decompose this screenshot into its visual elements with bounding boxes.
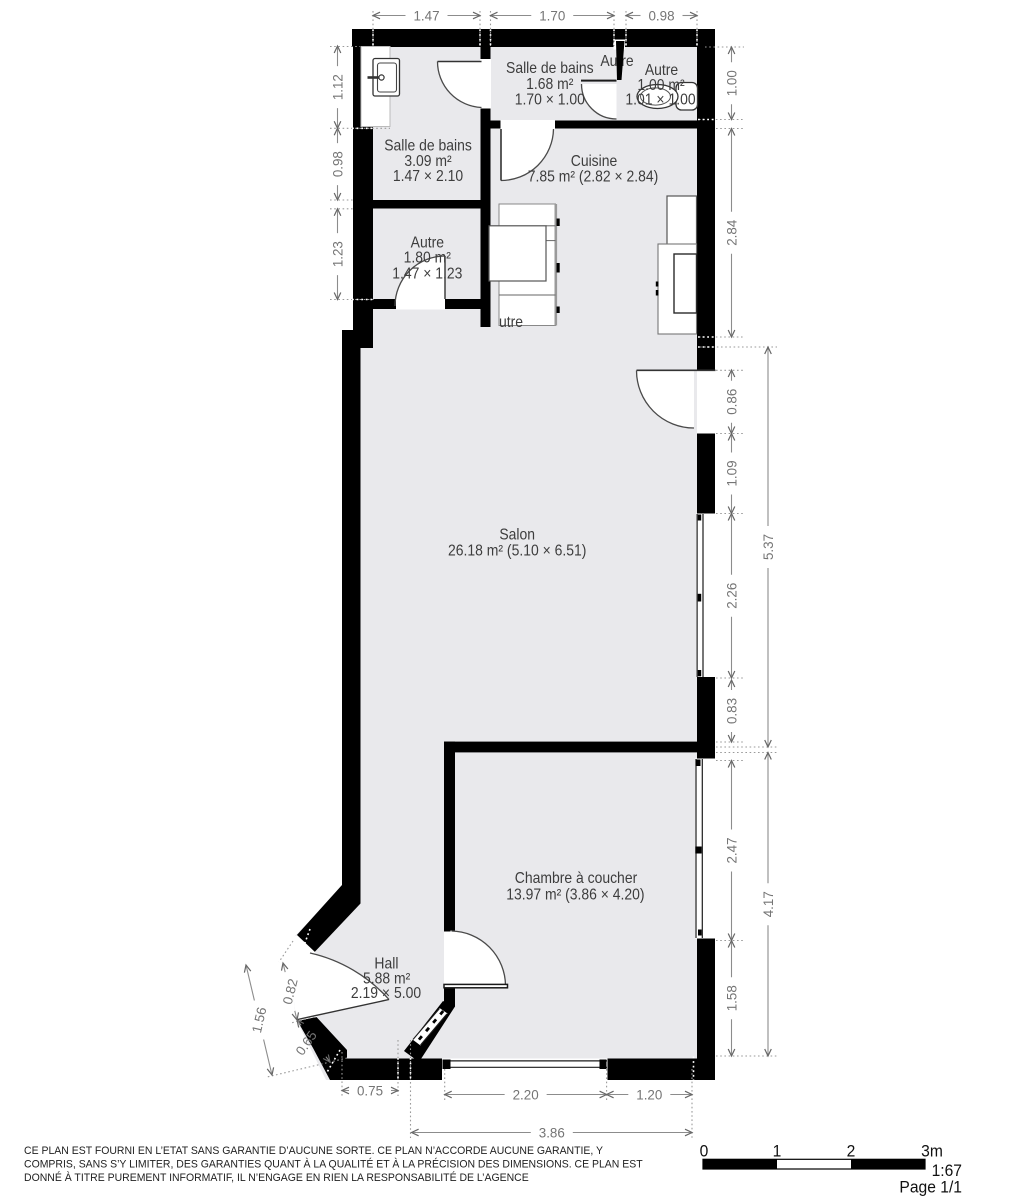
svg-text:0: 0 xyxy=(700,1142,709,1161)
svg-text:CE PLAN EST FOURNI EN L’ETAT S: CE PLAN EST FOURNI EN L’ETAT SANS GARANT… xyxy=(24,1145,604,1157)
svg-text:utre: utre xyxy=(499,314,523,331)
svg-text:2: 2 xyxy=(847,1142,856,1161)
svg-text:0.98: 0.98 xyxy=(330,151,345,177)
svg-text:13.97 m² (3.86 × 4.20): 13.97 m² (3.86 × 4.20) xyxy=(506,887,644,904)
svg-text:Chambre à coucher: Chambre à coucher xyxy=(515,870,638,887)
svg-text:1.58: 1.58 xyxy=(724,985,739,1011)
svg-text:Salon: Salon xyxy=(499,527,535,544)
svg-text:1.68 m²: 1.68 m² xyxy=(526,76,573,93)
svg-text:1.20: 1.20 xyxy=(636,1087,662,1102)
svg-text:7.85 m² (2.82 × 2.84): 7.85 m² (2.82 × 2.84) xyxy=(528,169,659,186)
svg-text:1.09: 1.09 xyxy=(724,460,739,486)
svg-text:3.86: 3.86 xyxy=(539,1125,565,1140)
svg-text:4.17: 4.17 xyxy=(761,891,776,917)
svg-text:1.47: 1.47 xyxy=(413,8,439,23)
svg-text:0.86: 0.86 xyxy=(724,389,739,415)
svg-text:1.80 m²: 1.80 m² xyxy=(404,250,451,267)
svg-text:3m: 3m xyxy=(921,1142,943,1161)
svg-text:1.47 × 1.23: 1.47 × 1.23 xyxy=(392,266,462,283)
svg-text:5.37: 5.37 xyxy=(761,534,776,560)
svg-text:2.84: 2.84 xyxy=(724,219,739,246)
svg-text:Salle de bains: Salle de bains xyxy=(506,60,594,77)
svg-text:0.83: 0.83 xyxy=(724,698,739,724)
svg-text:2.26: 2.26 xyxy=(724,583,739,609)
svg-text:2.20: 2.20 xyxy=(513,1087,539,1102)
svg-text:1.47 × 2.10: 1.47 × 2.10 xyxy=(393,168,463,185)
svg-text:Cuisine: Cuisine xyxy=(571,153,617,170)
svg-text:Page 1/1: Page 1/1 xyxy=(899,1178,962,1197)
svg-text:1.00: 1.00 xyxy=(724,70,739,96)
svg-text:1.01 × 1.00: 1.01 × 1.00 xyxy=(625,92,695,109)
svg-text:1.23: 1.23 xyxy=(330,241,345,267)
svg-text:1.12: 1.12 xyxy=(330,74,345,100)
svg-text:COMPRIS, SANS S’Y LIMITER, DES: COMPRIS, SANS S’Y LIMITER, DES GARANTIES… xyxy=(24,1157,643,1171)
svg-text:0.75: 0.75 xyxy=(357,1083,383,1098)
svg-text:2.19 × 5.00: 2.19 × 5.00 xyxy=(351,986,421,1003)
svg-text:DONNÉ À TITRE PUREMENT INFORMA: DONNÉ À TITRE PUREMENT INFORMATIF, IL N’… xyxy=(24,1171,529,1185)
svg-text:Salle de bains: Salle de bains xyxy=(384,138,472,155)
svg-text:1: 1 xyxy=(773,1142,782,1161)
svg-text:2.47: 2.47 xyxy=(724,837,739,863)
svg-text:0.98: 0.98 xyxy=(648,8,674,23)
svg-text:1.70: 1.70 xyxy=(539,8,565,23)
svg-text:26.18 m² (5.10 × 6.51): 26.18 m² (5.10 × 6.51) xyxy=(448,543,586,560)
svg-text:1.70 × 1.00: 1.70 × 1.00 xyxy=(515,92,585,109)
